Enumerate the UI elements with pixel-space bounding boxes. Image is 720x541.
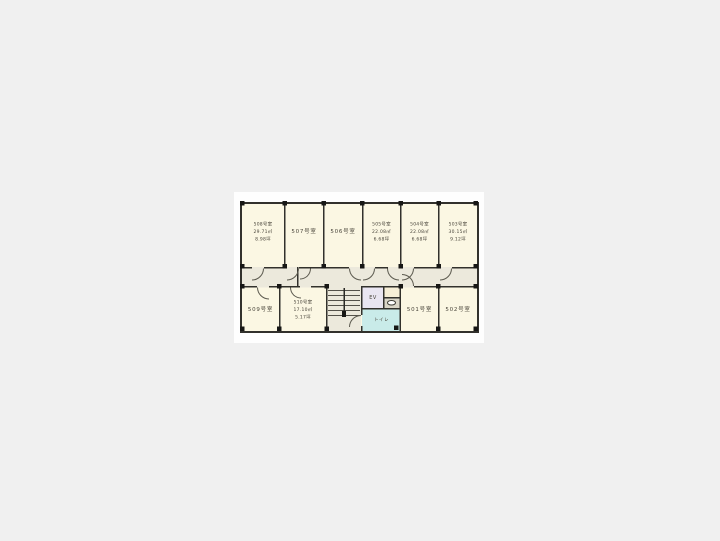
room-504: 504号室 22.08㎡ 6.68坪 (401, 212, 438, 250)
sink-icon (387, 300, 396, 306)
room-number: 505号室 (372, 220, 391, 227)
room-number: 503号室 (449, 220, 468, 227)
column-marker (437, 201, 442, 206)
column-marker (360, 201, 365, 206)
room-507: 507号室 (285, 212, 323, 250)
core-wall (361, 286, 401, 288)
room-area-tsubo: 6.68坪 (374, 235, 390, 242)
column-marker (474, 264, 479, 269)
room-number: 507号室 (291, 227, 316, 235)
room-area-tsubo: 6.68坪 (412, 235, 428, 242)
column-marker (436, 284, 441, 289)
room-number: 509号室 (248, 305, 273, 313)
elevator-label: EV (362, 295, 384, 301)
room-area-m2: 22.08㎡ (372, 228, 391, 235)
room-510: 510号室 17.10㎡ 5.17坪 (281, 290, 326, 328)
core-wall (361, 326, 363, 331)
room-area-m2: 22.08㎡ (410, 228, 429, 235)
room-509: 509号室 (242, 290, 279, 328)
wall (326, 287, 328, 331)
room-number: 502号室 (445, 305, 470, 313)
column-marker (277, 284, 282, 289)
room-number: 510号室 (294, 298, 313, 305)
room-area-tsubo: 8.98坪 (255, 235, 271, 242)
column-marker (474, 201, 479, 206)
room-area-m2: 30.15㎡ (449, 228, 468, 235)
toilet-label: トイレ (362, 316, 401, 323)
core-wall (361, 287, 363, 315)
floorplan-drawing: 508号室 29.71㎡ 8.98坪 507号室 506号室 505号室 22.… (234, 192, 484, 343)
room-area-m2: 17.10㎡ (294, 306, 313, 313)
page-background: 508号室 29.71㎡ 8.98坪 507号室 506号室 505号室 22.… (0, 0, 720, 541)
room-area-tsubo: 5.17坪 (295, 313, 311, 320)
core-wall (361, 308, 401, 310)
room-508: 508号室 29.71㎡ 8.98坪 (242, 212, 284, 250)
column-marker (240, 201, 245, 206)
door-opening (402, 286, 414, 288)
room-number: 501号室 (407, 305, 432, 313)
stair-newel (342, 311, 346, 317)
column-marker (322, 201, 327, 206)
column-marker (240, 284, 245, 289)
room-area-tsubo: 9.12坪 (450, 235, 466, 242)
column-marker (474, 284, 479, 289)
room-503: 503号室 30.15㎡ 9.12坪 (439, 212, 477, 250)
floorplan-image: 508号室 29.71㎡ 8.98坪 507号室 506号室 505号室 22.… (234, 192, 484, 343)
room-area-m2: 29.71㎡ (254, 228, 273, 235)
room-number: 506号室 (330, 227, 355, 235)
core-wall (383, 297, 401, 299)
room-501: 501号室 (401, 290, 438, 328)
wall (242, 286, 297, 288)
column-marker (399, 201, 404, 206)
room-502: 502号室 (439, 290, 477, 328)
room-number: 508号室 (254, 220, 273, 227)
column-marker (325, 284, 330, 289)
room-number: 504号室 (410, 220, 429, 227)
room-505: 505号室 22.08㎡ 6.68坪 (363, 212, 400, 250)
room-506: 506号室 (324, 212, 362, 250)
column-marker (283, 201, 288, 206)
door-opening (300, 286, 311, 288)
column-marker (322, 264, 327, 269)
column-marker (240, 264, 245, 269)
column-marker (394, 326, 399, 331)
